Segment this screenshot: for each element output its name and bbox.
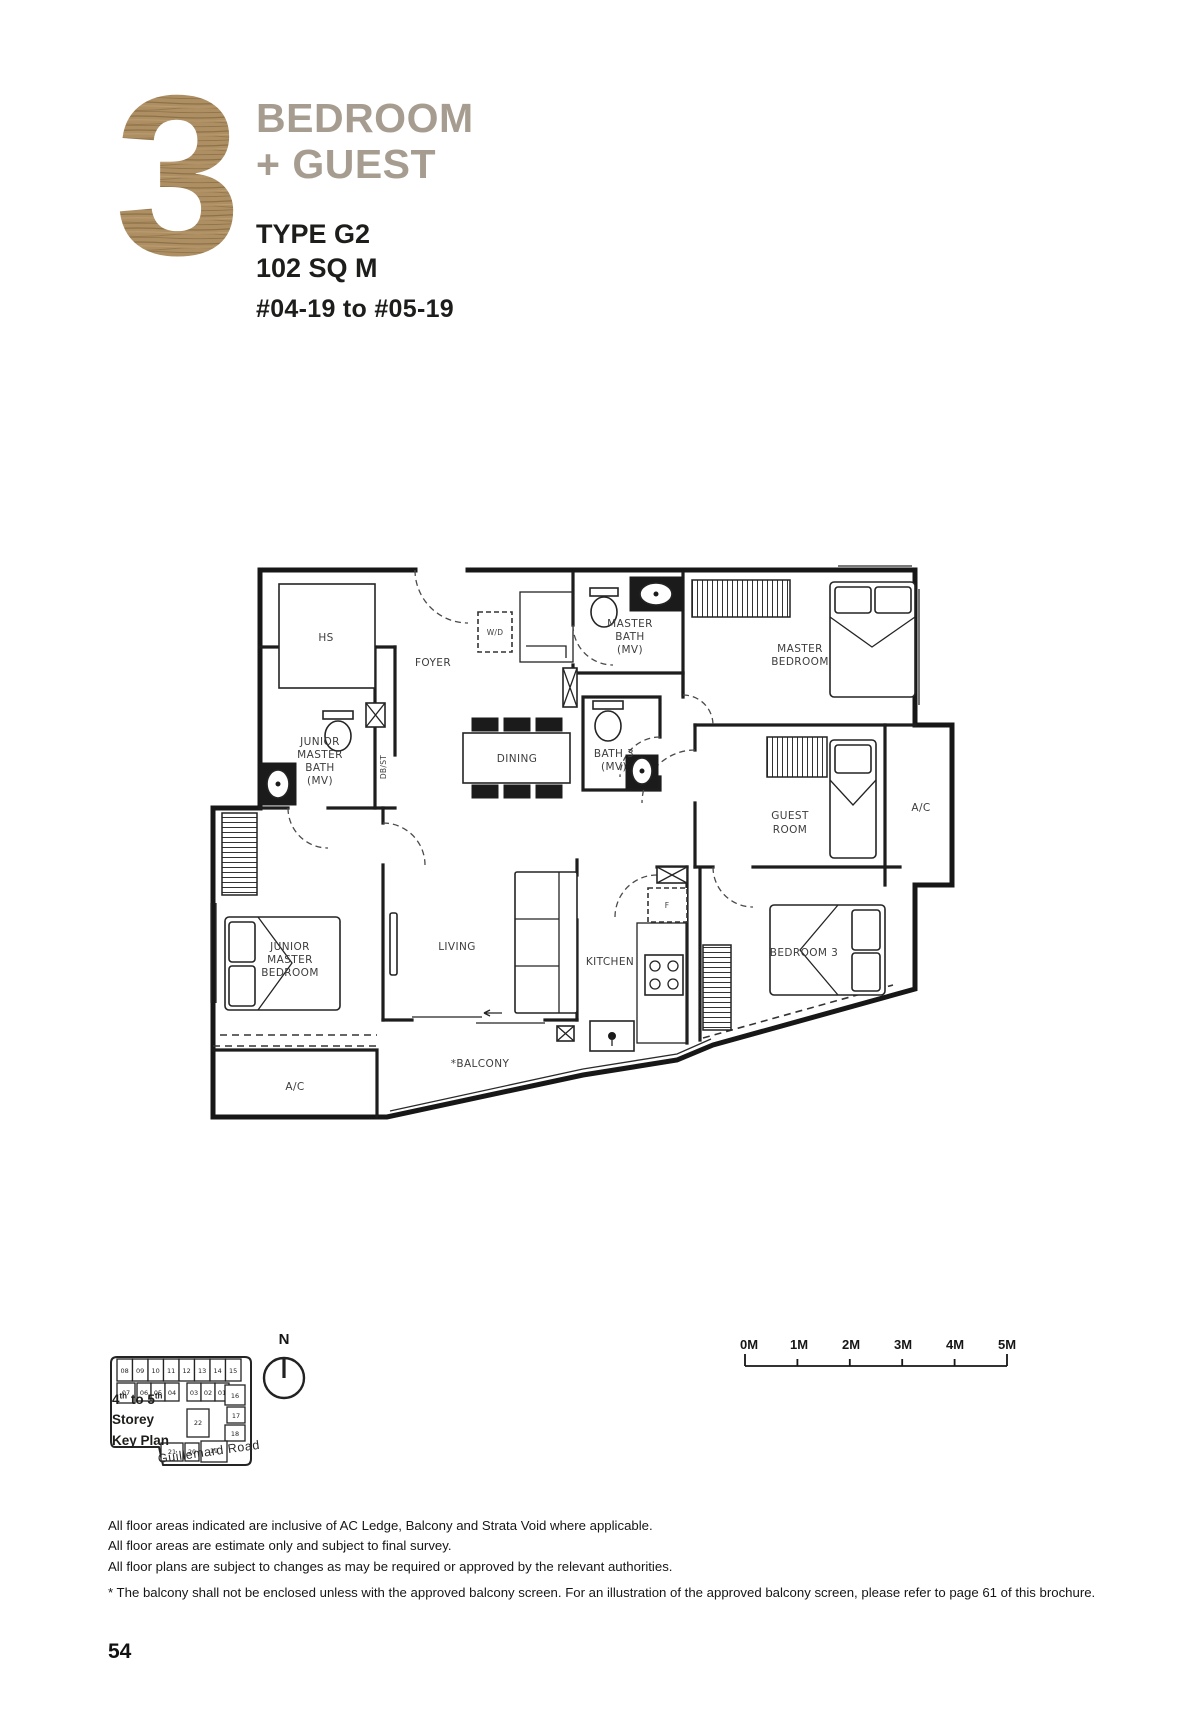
- svg-text:11: 11: [167, 1367, 175, 1375]
- room-label-dbst: DB/ST: [379, 755, 388, 779]
- svg-text:(MV): (MV): [601, 761, 627, 773]
- room-label-living: LIVING: [438, 941, 476, 953]
- svg-text:(MV): (MV): [617, 644, 643, 656]
- svg-text:BATH 3: BATH 3: [594, 748, 634, 760]
- junior-master-wardrobe: [222, 813, 257, 895]
- room-label-junior-master-bath: JUNIOR MASTER BATH (MV): [297, 736, 343, 787]
- guest-bed: [830, 740, 876, 858]
- room-label-guest-room: GUEST ROOM: [771, 810, 809, 836]
- shaft-box: [657, 867, 687, 883]
- svg-text:JUNIOR: JUNIOR: [299, 736, 340, 748]
- svg-text:BEDROOM: BEDROOM: [261, 967, 319, 979]
- key-plan-title: 4th to 5th Storey Key Plan: [112, 1390, 169, 1451]
- compass-n-label: N: [279, 1331, 290, 1348]
- kitchen-counter: [590, 888, 687, 1051]
- svg-text:5M: 5M: [998, 1337, 1016, 1352]
- bath3-fixtures: [593, 701, 658, 788]
- shaft-box: [557, 1026, 574, 1041]
- svg-text:MASTER: MASTER: [607, 618, 653, 630]
- sofa: [515, 872, 577, 1013]
- disclaimer-line: All floor plans are subject to changes a…: [108, 1557, 672, 1577]
- tv-console: [390, 913, 397, 975]
- svg-text:04: 04: [168, 1389, 176, 1397]
- svg-text:22: 22: [194, 1419, 202, 1427]
- page-number: 54: [108, 1640, 131, 1664]
- balcony-note: * The balcony shall not be enclosed unle…: [108, 1585, 1095, 1600]
- svg-text:08: 08: [121, 1367, 129, 1375]
- svg-text:MASTER: MASTER: [267, 954, 313, 966]
- master-bed: [830, 582, 915, 697]
- unit-numbers: #04-19 to #05-19: [256, 295, 454, 324]
- shaft-box: [563, 668, 577, 707]
- svg-text:(MV): (MV): [307, 775, 333, 787]
- svg-text:0M: 0M: [740, 1337, 758, 1352]
- page-title: BEDROOM + GUEST: [256, 96, 474, 188]
- master-wardrobe: [692, 580, 790, 617]
- disclaimer-notes: All floor areas indicated are inclusive …: [108, 1516, 672, 1577]
- svg-text:MASTER: MASTER: [297, 749, 343, 761]
- unit-type-block: TYPE G2 102 SQ M: [256, 218, 378, 286]
- disclaimer-line: All floor areas indicated are inclusive …: [108, 1516, 672, 1536]
- title-line-2: + GUEST: [256, 142, 474, 188]
- room-label-hs: HS: [318, 632, 333, 644]
- shaft-box: [366, 703, 385, 727]
- room-label-dining: DINING: [497, 753, 538, 765]
- room-label-balcony: *BALCONY: [451, 1058, 510, 1070]
- room-label-master-bath: MASTER BATH (MV): [607, 618, 653, 656]
- svg-text:GUEST: GUEST: [771, 810, 809, 822]
- svg-text:18: 18: [231, 1430, 239, 1438]
- svg-text:MASTER: MASTER: [777, 643, 823, 655]
- svg-text:16: 16: [231, 1392, 239, 1400]
- svg-text:ROOM: ROOM: [773, 824, 807, 836]
- floor-plan: HS FOYER W/D MASTER BATH (MV) MASTER BED…: [190, 505, 960, 1125]
- unit-count-numeral: 3: [108, 86, 253, 271]
- svg-text:3: 3: [115, 86, 242, 271]
- brochure-page: { "header": { "big_number": "3", "title_…: [0, 0, 1181, 1713]
- guest-wardrobe: [767, 737, 827, 777]
- svg-text:1M: 1M: [790, 1337, 808, 1352]
- svg-text:BEDROOM: BEDROOM: [771, 656, 829, 668]
- room-label-kitchen: KITCHEN: [586, 956, 634, 968]
- scale-bar: 0M 1M 2M 3M 4M 5M: [733, 1336, 1023, 1372]
- bedroom3-wardrobe: [703, 945, 731, 1030]
- room-label-bedroom3: BEDROOM 3: [770, 947, 838, 959]
- svg-text:2M: 2M: [842, 1337, 860, 1352]
- kitchen-sink: [590, 1021, 634, 1051]
- room-label-ac-bottom: A/C: [285, 1081, 304, 1093]
- room-label-fridge: F: [665, 901, 670, 910]
- svg-text:10: 10: [152, 1367, 160, 1375]
- svg-text:JUNIOR: JUNIOR: [269, 941, 310, 953]
- svg-text:15: 15: [229, 1367, 237, 1375]
- room-label-wd: W/D: [487, 628, 504, 637]
- svg-text:4M: 4M: [946, 1337, 964, 1352]
- svg-text:BATH: BATH: [615, 631, 644, 643]
- svg-text:03: 03: [190, 1389, 198, 1397]
- svg-text:BATH: BATH: [305, 762, 334, 774]
- room-label-master-bedroom: MASTER BEDROOM: [771, 643, 829, 668]
- svg-text:09: 09: [136, 1367, 144, 1375]
- svg-text:3M: 3M: [894, 1337, 912, 1352]
- unit-area: 102 SQ M: [256, 252, 378, 286]
- title-line-1: BEDROOM: [256, 96, 474, 142]
- disclaimer-line: All floor areas are estimate only and su…: [108, 1536, 672, 1556]
- svg-text:12: 12: [183, 1367, 191, 1375]
- svg-text:14: 14: [214, 1367, 222, 1375]
- svg-text:13: 13: [198, 1367, 206, 1375]
- hob: [645, 955, 683, 995]
- svg-text:17: 17: [232, 1412, 240, 1420]
- room-label-ac-right: A/C: [911, 802, 930, 814]
- north-compass: N: [252, 1330, 316, 1408]
- unit-type: TYPE G2: [256, 218, 378, 252]
- svg-text:02: 02: [204, 1389, 212, 1397]
- room-label-foyer: FOYER: [415, 657, 451, 669]
